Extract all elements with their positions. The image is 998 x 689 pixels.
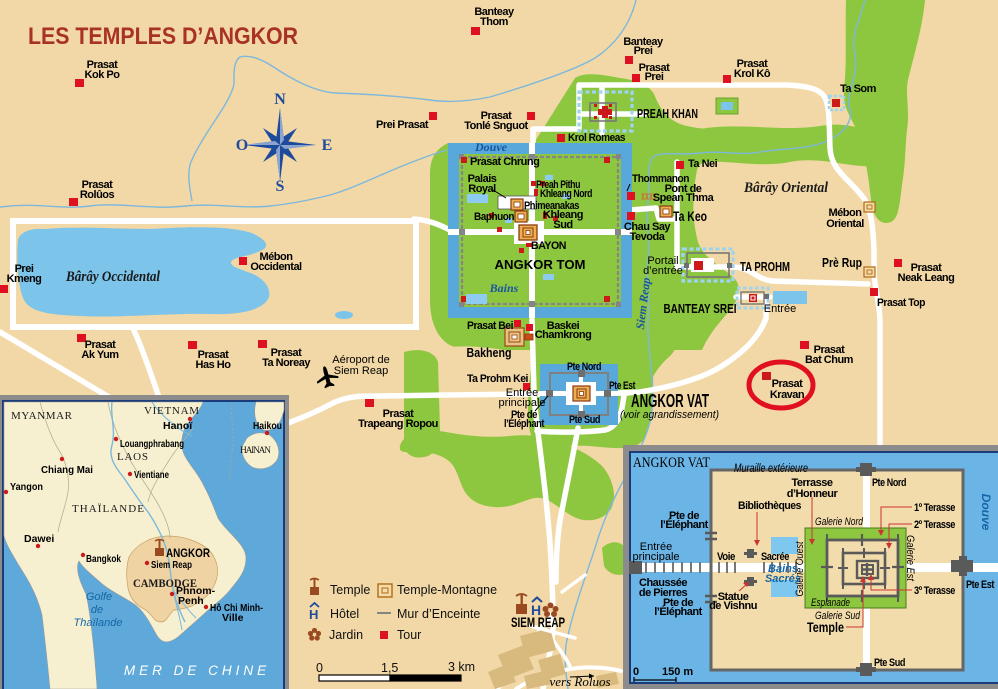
svg-text:Aéroport deSiem Reap: Aéroport deSiem Reap	[332, 354, 389, 377]
svg-text:Pte Nord: Pte Nord	[872, 477, 906, 489]
svg-text:PREAH KHAN: PREAH KHAN	[637, 106, 698, 121]
svg-text:MYANMAR: MYANMAR	[11, 410, 73, 422]
svg-text:S: S	[276, 178, 285, 195]
svg-text:MER DE CHINE: MER DE CHINE	[124, 663, 270, 678]
svg-text:Entrée: Entrée	[764, 303, 796, 315]
svg-text:Pte Est: Pte Est	[966, 579, 995, 591]
svg-text:Galerie Est: Galerie Est	[904, 535, 916, 582]
svg-text:HAINAN: HAINAN	[240, 446, 271, 456]
svg-text:Voie: Voie	[717, 551, 735, 563]
svg-text:PrasatAk Yum: PrasatAk Yum	[81, 339, 119, 361]
svg-text:ANGKOR VAT: ANGKOR VAT	[631, 391, 709, 411]
svg-text:Prasat Bei: Prasat Bei	[467, 320, 513, 332]
svg-text:Sacrée: Sacrée	[761, 551, 789, 563]
svg-text:1º Terasse: 1º Terasse	[914, 502, 955, 514]
svg-text:Yangon: Yangon	[10, 481, 43, 493]
svg-text:Baphuon: Baphuon	[474, 211, 515, 223]
svg-text:Penh: Penh	[178, 595, 204, 607]
svg-text:0: 0	[316, 661, 323, 675]
svg-text:Dawei: Dawei	[24, 533, 54, 545]
svg-text:Bârây Occidental: Bârây Occidental	[65, 269, 161, 285]
svg-text:THAÏLANDE: THAÏLANDE	[72, 503, 144, 515]
svg-text:Krol Romeas: Krol Romeas	[568, 132, 625, 144]
svg-text:Temple: Temple	[807, 619, 844, 635]
svg-text:Hanoï: Hanoï	[163, 420, 193, 432]
svg-text:Ta Keo: Ta Keo	[673, 208, 707, 224]
svg-text:PrasatHas Ho: PrasatHas Ho	[196, 349, 232, 371]
svg-text:Pte Sud: Pte Sud	[569, 414, 600, 426]
svg-text:SIEM REAP: SIEM REAP	[511, 614, 565, 630]
svg-text:de: de	[91, 604, 103, 616]
svg-text:2º Terasse: 2º Terasse	[914, 519, 955, 531]
svg-text:H: H	[309, 607, 318, 622]
svg-text:Bakheng: Bakheng	[467, 345, 512, 360]
svg-text:Ta Prohm Kei: Ta Prohm Kei	[467, 373, 528, 385]
svg-text:Prè Rup: Prè Rup	[822, 255, 862, 270]
svg-text:CAMBODGE: CAMBODGE	[133, 578, 197, 590]
svg-text:Bârây Oriental: Bârây Oriental	[743, 180, 829, 196]
svg-text:Ta Som: Ta Som	[840, 83, 877, 95]
svg-text:Mur d’Enceinte: Mur d’Enceinte	[397, 607, 480, 621]
svg-text:Siem Reap: Siem Reap	[151, 559, 192, 571]
svg-text:PrasatKravan: PrasatKravan	[770, 378, 805, 401]
svg-text:Muraille extérieure: Muraille extérieure	[734, 463, 808, 475]
svg-text:Chausséede Pierres: Chausséede Pierres	[639, 577, 688, 599]
svg-text:O: O	[236, 137, 248, 154]
svg-text:Pte Nord: Pte Nord	[567, 361, 601, 373]
svg-text:Ville: Ville	[222, 612, 244, 624]
svg-text:Tour: Tour	[397, 628, 421, 642]
svg-text:Prasat Top: Prasat Top	[877, 297, 926, 309]
svg-text:Temple-Montagne: Temple-Montagne	[397, 583, 497, 597]
svg-text:Prasat Chrung: Prasat Chrung	[470, 156, 539, 168]
svg-text:MébonOriental: MébonOriental	[826, 207, 864, 230]
svg-text:3º Terasse: 3º Terasse	[914, 585, 955, 597]
svg-text:1,5: 1,5	[381, 661, 398, 675]
svg-text:PrasatKok Po: PrasatKok Po	[85, 59, 121, 81]
svg-text:Ta Nei: Ta Nei	[688, 158, 718, 170]
svg-text:Galerie Nord: Galerie Nord	[815, 516, 864, 528]
svg-text:PrasatRolûos: PrasatRolûos	[80, 179, 115, 201]
svg-text:Douve: Douve	[474, 140, 508, 154]
svg-text:BainsSacrés: BainsSacrés	[765, 563, 801, 585]
svg-text:Portaild’entrée: Portaild’entrée	[643, 255, 683, 277]
svg-text:ANGKOR TOM: ANGKOR TOM	[495, 257, 586, 272]
svg-text:Khleang Nord: Khleang Nord	[540, 188, 592, 200]
svg-text:(voir agrandissement): (voir agrandissement)	[620, 409, 719, 421]
svg-text:E: E	[322, 137, 333, 154]
svg-text:Thaïlande: Thaïlande	[74, 617, 123, 629]
svg-text:Haikou: Haikou	[253, 420, 282, 432]
svg-text:ANGKOR: ANGKOR	[166, 546, 210, 560]
svg-text:VIETNAM: VIETNAM	[144, 405, 199, 417]
svg-text:Louangphrabang: Louangphrabang	[120, 438, 184, 450]
svg-text:Prei Prasat: Prei Prasat	[376, 119, 429, 131]
svg-text:0: 0	[633, 666, 639, 678]
svg-text:BAYON: BAYON	[531, 240, 567, 252]
svg-text:Esplanade: Esplanade	[811, 597, 850, 609]
svg-text:Bibliothèques: Bibliothèques	[738, 500, 801, 512]
svg-text:3 km: 3 km	[448, 660, 475, 674]
svg-text:Chiang Mai: Chiang Mai	[41, 464, 93, 476]
svg-text:Bains: Bains	[489, 281, 519, 295]
svg-text:Jardin: Jardin	[329, 628, 363, 642]
svg-text:Chau SayTevoda: Chau SayTevoda	[624, 221, 672, 243]
svg-text:PrasatKrol Kô: PrasatKrol Kô	[734, 58, 771, 80]
svg-text:TA PROHM: TA PROHM	[740, 259, 790, 274]
svg-text:150 m: 150 m	[662, 666, 693, 678]
svg-text:Hôtel: Hôtel	[330, 607, 359, 621]
svg-text:Golfe: Golfe	[86, 591, 112, 603]
svg-text:Pte Sud: Pte Sud	[874, 657, 905, 669]
svg-text:N: N	[274, 91, 286, 108]
svg-text:BANTEAY SREI: BANTEAY SREI	[664, 301, 737, 316]
svg-text:LES TEMPLES D’ANGKOR: LES TEMPLES D’ANGKOR	[28, 23, 298, 50]
svg-text:LAOS: LAOS	[117, 451, 148, 463]
svg-text:Terrassed’Honneur: Terrassed’Honneur	[787, 477, 839, 500]
svg-text:Vientiane: Vientiane	[134, 469, 169, 481]
svg-text:PalaisRoyal: PalaisRoyal	[468, 173, 497, 195]
svg-text:Bangkok: Bangkok	[86, 553, 121, 565]
svg-text:Temple: Temple	[330, 583, 370, 597]
svg-text:Douve: Douve	[979, 494, 993, 531]
svg-text:ANGKOR VAT: ANGKOR VAT	[633, 455, 710, 471]
